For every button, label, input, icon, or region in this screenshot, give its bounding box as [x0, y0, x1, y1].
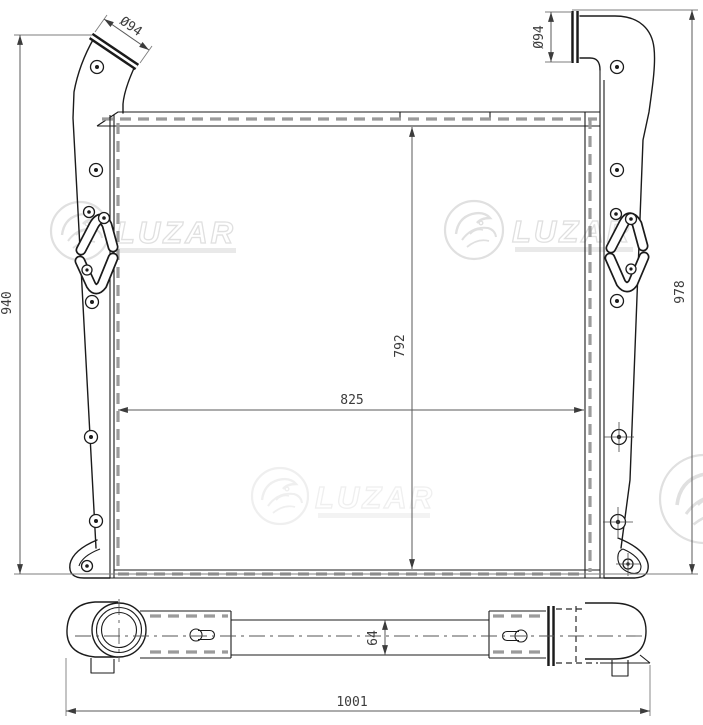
- left-pipe-inner-edge: [123, 66, 135, 113]
- right-tab: [612, 660, 628, 676]
- dim-940: 940: [0, 291, 15, 314]
- luzar-watermark-right: LUZAR: [445, 201, 633, 259]
- right-pipe-inner-edge: [580, 58, 600, 70]
- dim-1001: 1001: [336, 695, 367, 710]
- watermark-subtitle-band: [318, 513, 430, 518]
- dim-d94-right: Ø94: [532, 25, 547, 49]
- bottom-dimensions: 64 1001: [66, 620, 650, 716]
- right-foot-bracket: [604, 538, 648, 578]
- dim-d94-left: Ø94: [117, 14, 145, 40]
- right-elbow-end: [585, 603, 646, 659]
- watermark-brand-text: LUZAR: [116, 215, 236, 250]
- luzar-watermark-center: LUZAR: [252, 468, 435, 524]
- left-tank: [70, 36, 137, 578]
- left-foot-bracket: [70, 540, 110, 578]
- bottom-left-tank: [140, 611, 231, 658]
- luzar-watermark-edge: [660, 455, 703, 543]
- rivets: [85, 61, 624, 528]
- watermark-subtitle-band: [118, 248, 236, 253]
- intercooler-drawing: LUZAR LUZAR LUZAR: [0, 0, 703, 725]
- bottom-core: [231, 620, 489, 655]
- bottom-right-pipe: [551, 603, 650, 676]
- dim-64: 64: [366, 630, 381, 646]
- dim-825: 825: [340, 393, 363, 408]
- technical-drawing-page: LUZAR LUZAR LUZAR: [0, 0, 703, 725]
- dim-978: 978: [673, 280, 688, 303]
- left-tab: [91, 658, 114, 673]
- dim-792: 792: [393, 334, 408, 357]
- bottom-right-tank: [489, 611, 546, 658]
- watermark-brand-text: LUZAR: [315, 480, 435, 515]
- bottom-view: 64 1001: [66, 599, 650, 716]
- keyhole-slot-left: [190, 629, 215, 641]
